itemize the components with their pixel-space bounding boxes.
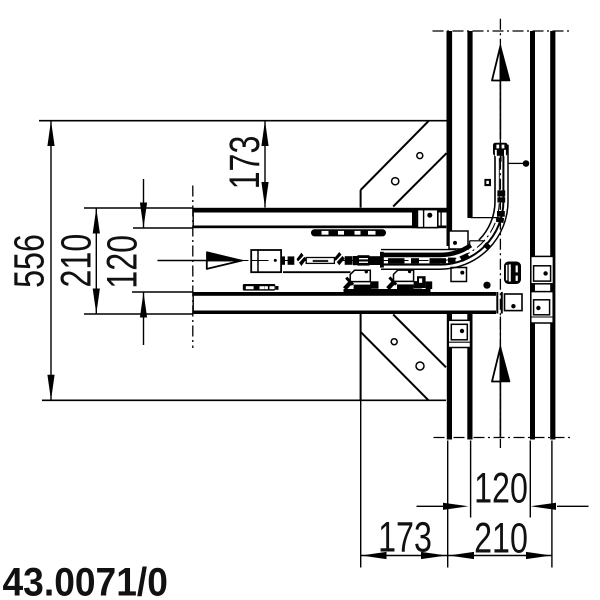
svg-text:120: 120 (99, 235, 147, 289)
svg-text:173: 173 (221, 136, 269, 190)
svg-text:173: 173 (378, 514, 432, 562)
svg-text:210: 210 (474, 515, 528, 563)
svg-text:210: 210 (53, 234, 101, 288)
svg-text:556: 556 (6, 234, 54, 288)
svg-text:43.0071/0: 43.0071/0 (3, 560, 168, 600)
svg-text:120: 120 (474, 465, 528, 513)
